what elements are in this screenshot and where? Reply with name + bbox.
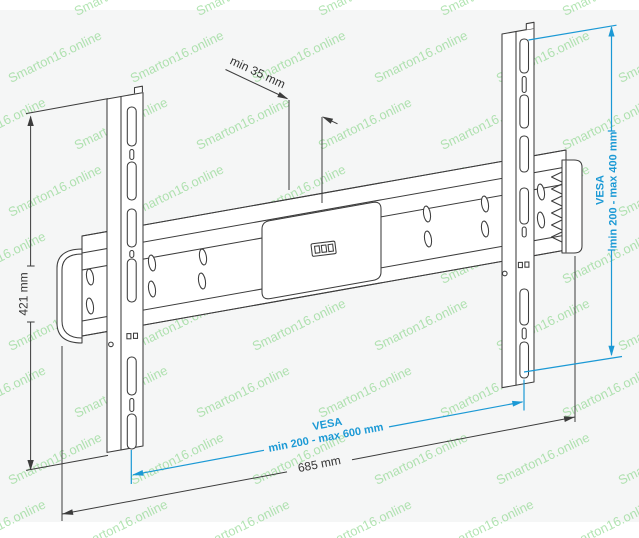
wall-mount-dimension-diagram: Smarton16.onlineSmarton16.onlineSmarton1… bbox=[0, 0, 639, 538]
left-rail bbox=[107, 86, 143, 452]
diagram-svg: Smarton16.onlineSmarton16.onlineSmarton1… bbox=[0, 0, 639, 538]
vesa-vertical-range: min 200 - max 400 mm bbox=[608, 131, 620, 248]
right-rail-screw bbox=[503, 271, 508, 276]
vesa-vertical-title: VESA bbox=[595, 175, 607, 205]
left-end-cap bbox=[57, 249, 82, 343]
height-dimension-label: 421 mm bbox=[17, 272, 31, 315]
left-rail-screw bbox=[109, 342, 114, 347]
right-rail bbox=[502, 22, 534, 387]
plate-badge bbox=[311, 241, 336, 256]
